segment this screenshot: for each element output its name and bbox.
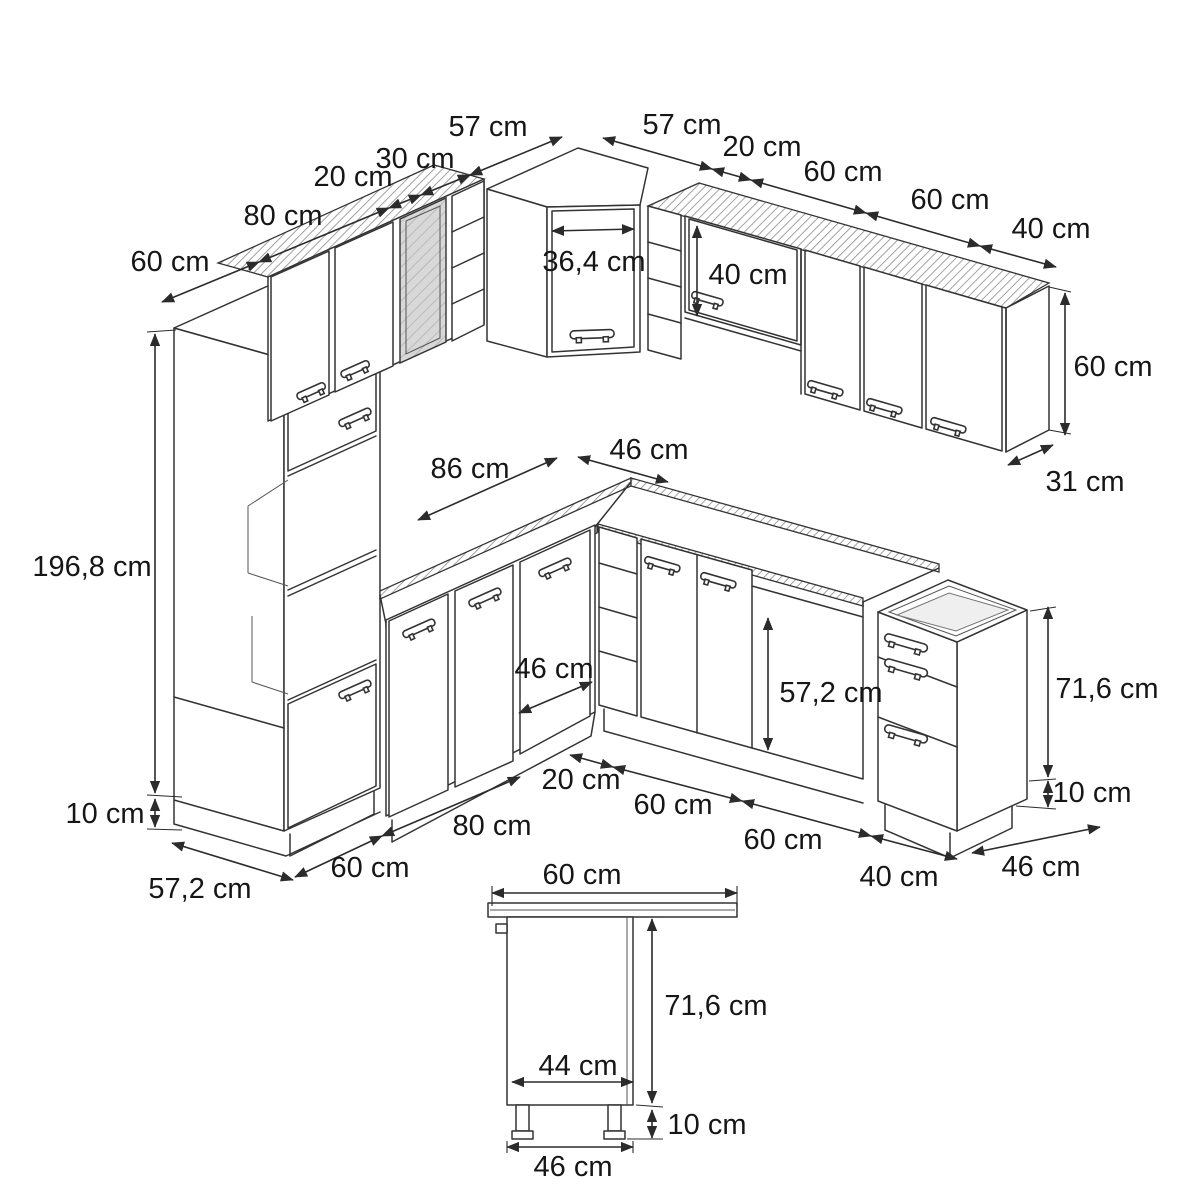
dim-label-base-height: 71,6 cm [1055, 673, 1158, 705]
dim-label-upper-door-height: 40 cm [709, 259, 788, 291]
dim-label-bottom-60b: 60 cm [744, 824, 823, 856]
dim-label-bottom-20: 20 cm [542, 764, 621, 796]
dim-label-left-57: 57 cm [449, 111, 528, 143]
dim-label-niche-height: 57,2 cm [779, 677, 882, 709]
dim-label-right-60a: 60 cm [804, 156, 883, 188]
dim-label-worktop-right: 46 cm [610, 434, 689, 466]
dim-label-base-depth: 46 cm [1002, 851, 1081, 883]
kitchen-dimension-diagram: 60 cm 80 cm 20 cm 30 cm 57 cm 57 cm 20 c… [0, 0, 1200, 1200]
dim-label-worktop-left: 86 cm [431, 453, 510, 485]
dim-label-bottom-60a: 60 cm [634, 789, 713, 821]
dim-label-bottom-40: 40 cm [860, 861, 939, 893]
dim-label-detail-width: 46 cm [534, 1151, 613, 1183]
dim-label-left-depth: 60 cm [131, 246, 210, 278]
dim-label-tall-height: 196,8 cm [32, 551, 151, 583]
dim-label-right-57: 57 cm [643, 109, 722, 141]
dim-label-right-40: 40 cm [1012, 213, 1091, 245]
dim-label-right-20: 20 cm [723, 131, 802, 163]
dim-label-left-30: 30 cm [376, 143, 455, 175]
dim-label-corner-door-width: 36,4 cm [542, 246, 645, 278]
dim-label-detail-height: 71,6 cm [664, 990, 767, 1022]
dim-label-wall-cabinet-depth: 31 cm [1046, 466, 1125, 498]
dim-label-right-60b: 60 cm [911, 184, 990, 216]
dim-label-bottom-left-80: 80 cm [453, 810, 532, 842]
dim-label-detail-inner-width: 44 cm [539, 1050, 618, 1082]
dim-label-corner-base-depth: 46 cm [515, 653, 594, 685]
dim-label-tall-depth: 57,2 cm [148, 873, 251, 905]
dim-label-plinth-right: 10 cm [1053, 777, 1132, 809]
dim-label-plinth-left: 10 cm [66, 798, 145, 830]
dim-label-detail-top-width: 60 cm [543, 859, 622, 891]
dim-label-wall-cabinet-height: 60 cm [1074, 351, 1153, 383]
dim-label-left-80: 80 cm [244, 200, 323, 232]
dim-label-detail-legs: 10 cm [668, 1109, 747, 1141]
dim-label-bottom-left-60: 60 cm [331, 852, 410, 884]
